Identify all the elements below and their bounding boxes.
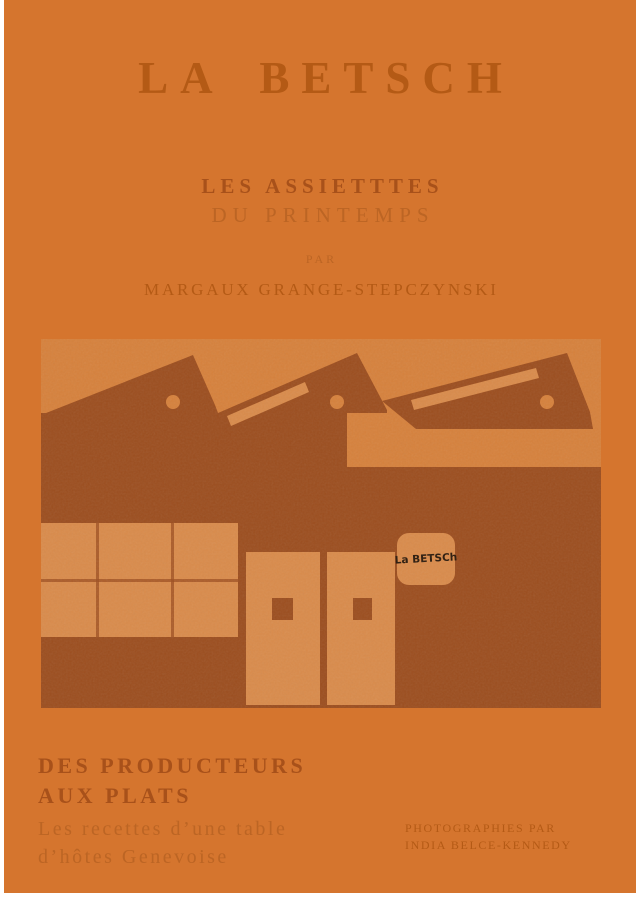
grain-overlay (41, 339, 601, 708)
photo-credit-block: PHOTOGRAPHIES PAR INDIA BELCE-KENNEDY (405, 820, 572, 854)
cover-subtitle: LES ASSIETTTES DU PRINTEMPS (4, 172, 636, 230)
footer-sub-line-2: d’hôtes Genevoise (38, 843, 306, 871)
cover-illustration: La BETSCh (41, 339, 601, 708)
photo-credit-line-2: INDIA BELCE-KENNEDY (405, 837, 572, 854)
footer-sub-line-1: Les recettes d’une table (38, 815, 306, 843)
cover-title: LA BETSCH (4, 52, 636, 104)
byline-label: PAR (4, 252, 636, 267)
subtitle-line-2: DU PRINTEMPS (4, 201, 636, 230)
cover-outer-frame: { "page": { "title": "LA BETSCH", "subti… (0, 0, 640, 905)
footer-text-block: DES PRODUCTEURS AUX PLATS Les recettes d… (38, 751, 306, 871)
cover-page: LA BETSCH LES ASSIETTTES DU PRINTEMPS PA… (4, 0, 636, 893)
author-name: MARGAUX GRANGE-STEPCZYNSKI (4, 280, 636, 300)
footer-heading-line-2: AUX PLATS (38, 781, 306, 811)
subtitle-line-1: LES ASSIETTTES (4, 172, 636, 201)
photo-credit-line-1: PHOTOGRAPHIES PAR (405, 820, 572, 837)
footer-heading-line-1: DES PRODUCTEURS (38, 751, 306, 781)
